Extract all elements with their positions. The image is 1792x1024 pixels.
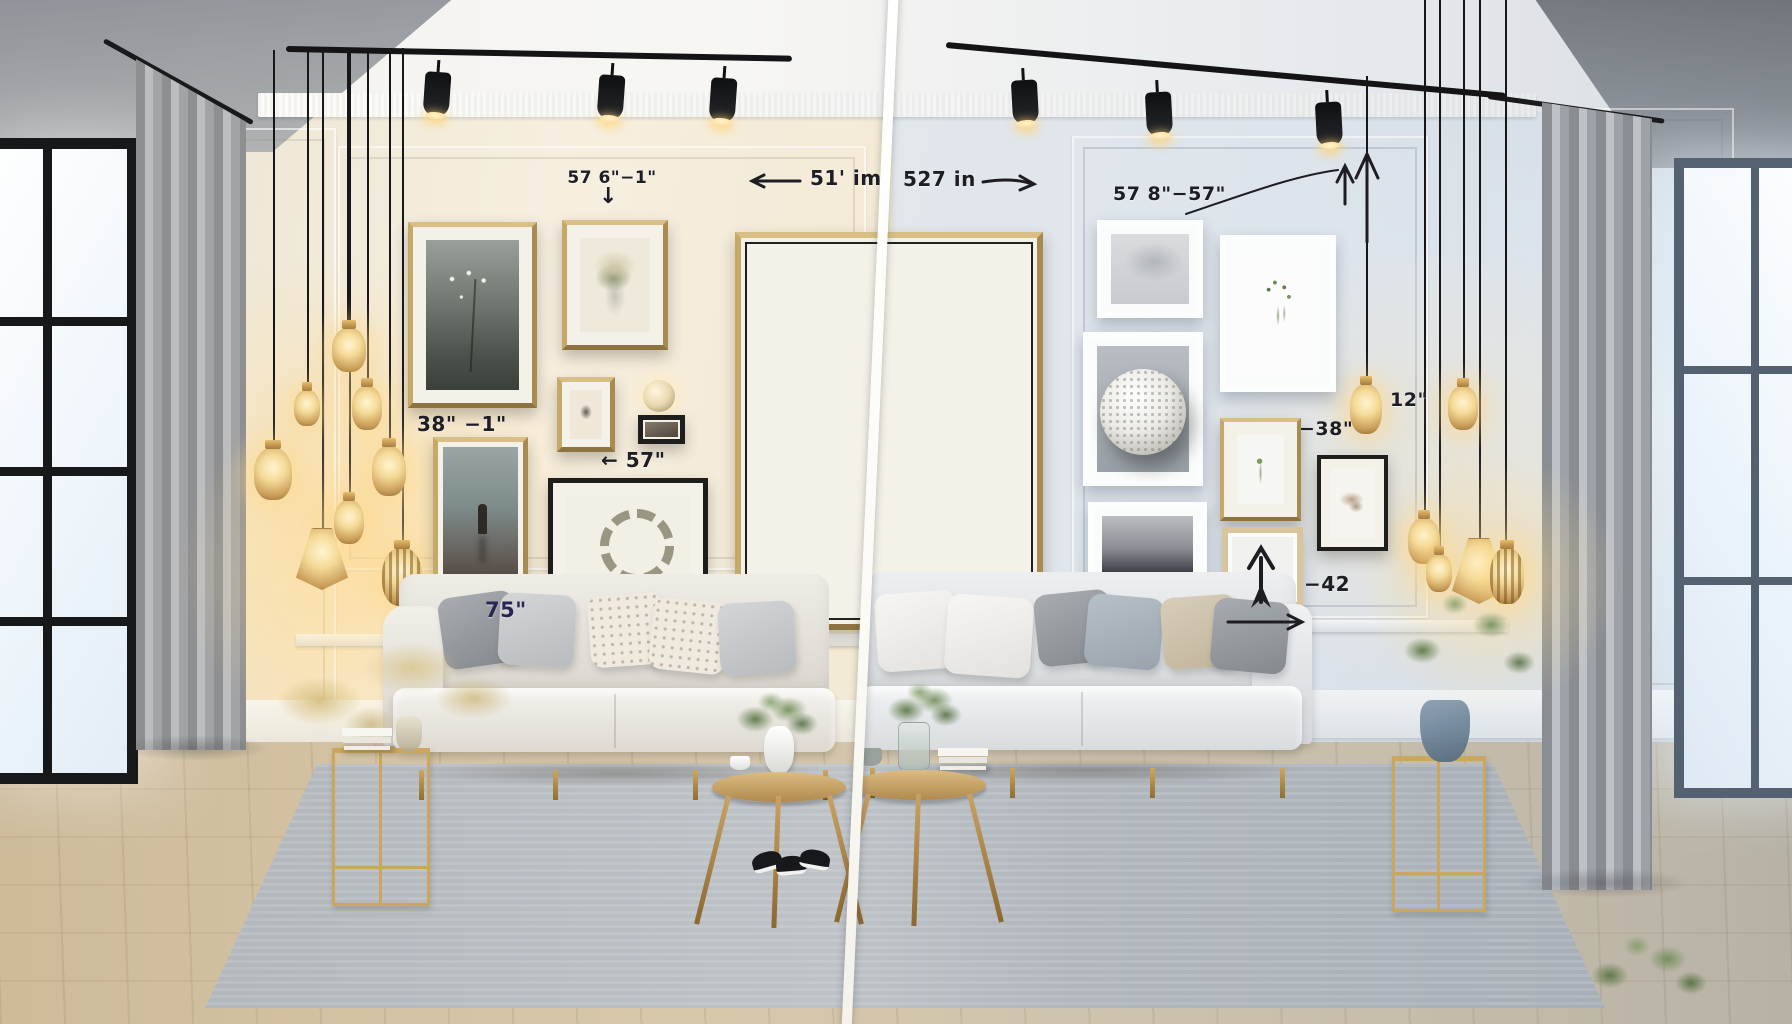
pendant-lamp (352, 386, 382, 430)
window-muntin (0, 317, 127, 326)
frame-mini-photo (638, 415, 685, 444)
foreground-leaves (1556, 916, 1736, 1024)
spotlight (1315, 101, 1343, 146)
artwork (580, 238, 650, 332)
pendant-lamp (334, 500, 364, 544)
pendant-cord (389, 48, 391, 446)
book-stack (938, 748, 988, 756)
sofa-leg (1280, 768, 1285, 798)
pendant-lamp (372, 446, 406, 496)
teacup (730, 756, 750, 770)
artwork (426, 240, 519, 390)
gold-side-table (332, 748, 430, 906)
down-arrow-icon: ↓ (599, 184, 618, 209)
sofa-leg (693, 770, 698, 800)
glass-vase (396, 716, 422, 752)
blue-glass-vase (1420, 700, 1470, 762)
throw-pillow (1209, 597, 1291, 675)
throw-pillow (1083, 593, 1165, 671)
artwork (1330, 468, 1375, 538)
pendant-cord (1463, 0, 1465, 386)
pendant-lamp (1350, 384, 1382, 434)
pendant-lamp (254, 448, 292, 500)
annotation-span-51: 51' im (810, 166, 882, 190)
annotation-drop-12: 12" (1390, 389, 1428, 411)
right-window (1674, 158, 1792, 798)
spotlight (1145, 91, 1173, 136)
frame-small-sketch (557, 377, 615, 452)
frame-small-plant (1220, 418, 1301, 521)
window-muntin (1751, 168, 1759, 788)
glass-jar (898, 722, 930, 770)
frame-botanical-stem (408, 222, 537, 408)
potted-plant (1358, 556, 1573, 728)
artwork (645, 422, 678, 437)
annotation-offset-38: −38" (1299, 418, 1353, 440)
annotation-height-75: 75" (485, 598, 527, 622)
pendant-cord (1366, 76, 1368, 384)
window-muntin (0, 617, 127, 626)
frame-bouquet (562, 220, 668, 350)
window-muntin (1684, 577, 1792, 585)
pendant-lamp (332, 328, 366, 372)
frame-green-sprigs (1220, 235, 1336, 392)
frame-moth-watercolor (1317, 455, 1388, 551)
throw-pillow (717, 600, 797, 676)
spotlight (596, 74, 625, 120)
pendant-lamp (1448, 386, 1478, 430)
annotation-span-527: 527 in (903, 167, 976, 191)
book-stack (342, 728, 392, 736)
annotation-gap-38: 38" −1" (417, 412, 507, 436)
window-muntin (43, 149, 52, 773)
annotation-width-57-value: 57" (626, 448, 666, 472)
window-muntin (0, 467, 127, 476)
coral-sphere (1100, 369, 1186, 455)
artwork (1239, 254, 1317, 373)
living-room-scene: 57 6"−1" ↓ 38" −1" ← 57" 75" 51' im 527 … (0, 0, 1792, 1024)
throw-pillow (943, 593, 1034, 679)
left-window (0, 138, 138, 784)
sofa-leg (1010, 768, 1015, 798)
pendant-cord (367, 50, 369, 386)
artwork (1237, 435, 1284, 504)
pendant-cord (307, 50, 309, 390)
artwork (570, 390, 602, 439)
artwork (1111, 234, 1189, 304)
frame-mist-abstract (1097, 220, 1203, 318)
sofa-leg (553, 770, 558, 800)
sofa-leg (1150, 768, 1155, 798)
artwork (1097, 346, 1189, 472)
table-leg (911, 794, 921, 926)
left-arrow-icon: ← (601, 448, 618, 472)
spotlight (422, 71, 451, 117)
frame-coral-sphere (1083, 332, 1203, 486)
pendant-cord (273, 50, 275, 448)
artwork (443, 447, 518, 582)
annotation-range-57-8: 57 8"−57" (1113, 183, 1226, 205)
glass-wall-sconce (643, 380, 675, 412)
annotation-offset-42: −42 (1304, 572, 1350, 596)
pendant-lamp (294, 390, 320, 426)
white-vase (764, 726, 794, 774)
annotation-width-57: ← 57" (601, 448, 666, 472)
window-muntin (1684, 366, 1792, 374)
gold-plant-stand (1392, 756, 1486, 912)
coffee-table-right (852, 770, 986, 940)
artwork (745, 242, 1033, 620)
curtain-shadow (1520, 868, 1690, 898)
pendant-cord (1424, 0, 1426, 518)
spotlight (708, 77, 737, 123)
spotlight (1011, 79, 1039, 124)
